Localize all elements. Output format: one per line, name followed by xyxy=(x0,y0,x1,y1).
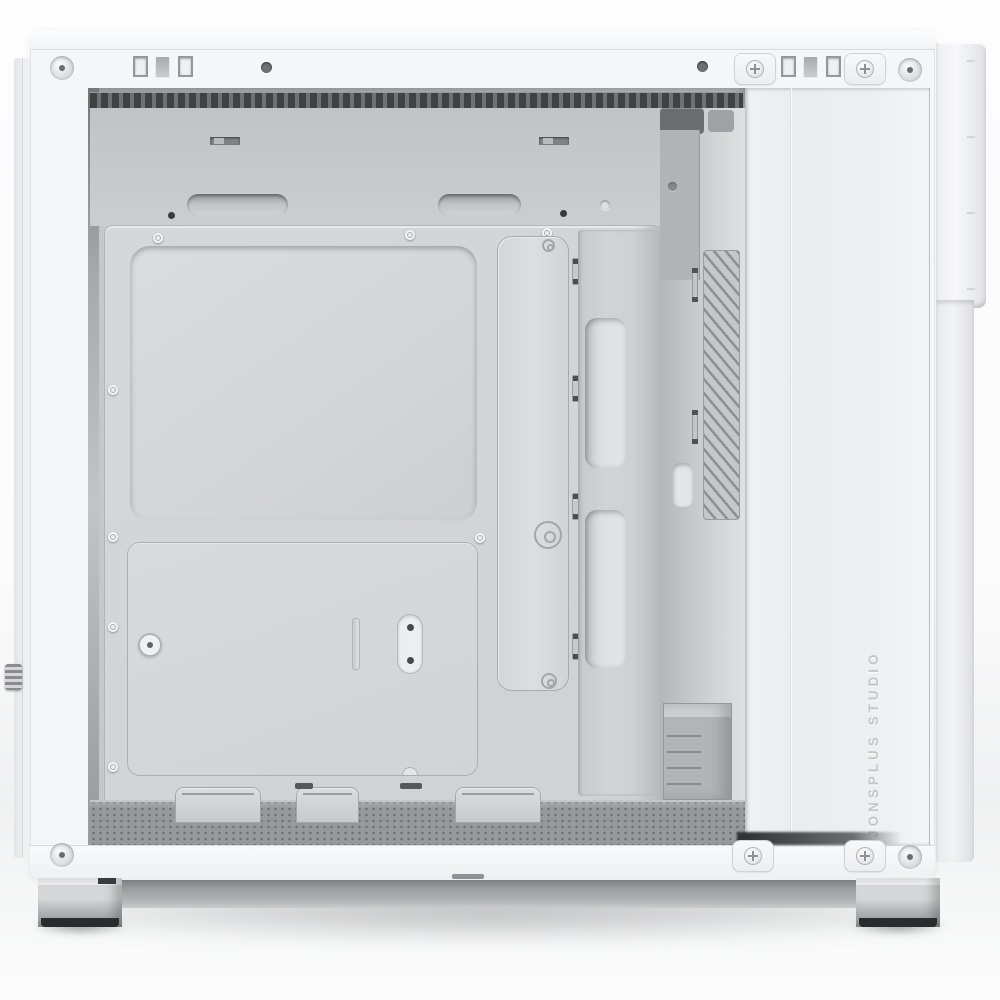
cable-passthrough-cutout xyxy=(585,318,626,468)
motherboard-standoff xyxy=(108,532,118,542)
top-frame-hole xyxy=(261,62,272,73)
wall-mount-slot xyxy=(692,268,698,302)
latch-tab xyxy=(804,57,817,76)
cable-tie-anchor xyxy=(572,493,579,520)
case-base-band xyxy=(50,879,918,908)
cable-passthrough-cutout xyxy=(585,510,626,668)
motherboard-standoff xyxy=(475,533,485,543)
left-case-foot xyxy=(38,878,122,927)
interior-cavity xyxy=(88,88,745,845)
louvered-vent-panel xyxy=(703,250,740,520)
top-bracket-gray xyxy=(708,110,734,132)
strip-screw-bottom xyxy=(541,673,557,689)
front-psu-column: JONSPLUS STUDIO xyxy=(745,88,930,845)
thumbscrew-tab xyxy=(733,841,773,871)
latch-cutout-group xyxy=(781,56,841,78)
latch-tab xyxy=(156,57,169,76)
foot-notch xyxy=(98,878,116,884)
tray-bottom-tab xyxy=(176,788,260,822)
thumbscrew-tab xyxy=(845,841,885,871)
panel-clip-slot xyxy=(210,137,240,145)
product-photo-pc-case: JONSPLUS STUDIO xyxy=(0,0,1000,1000)
wall-screw xyxy=(668,182,677,191)
bracket-screw xyxy=(407,624,414,631)
psu-drive-cover-panel xyxy=(128,543,477,775)
thumbscrew-tab xyxy=(845,54,885,84)
panel-pull-tab xyxy=(402,767,418,775)
brand-embossed-text: JONSPLUS STUDIO xyxy=(866,626,890,838)
handle-cutouts xyxy=(187,194,609,216)
wall-cutout xyxy=(672,463,693,507)
flange-clip-slot xyxy=(400,783,422,789)
edge-seam-ticks xyxy=(967,60,975,292)
black-screw xyxy=(168,212,175,219)
vertical-slot xyxy=(352,618,360,670)
interior-upper-wall xyxy=(90,108,745,226)
tray-edge-shade xyxy=(634,226,660,800)
cpu-cooler-cutout xyxy=(130,246,477,522)
latch-hole xyxy=(133,56,148,77)
column-seam xyxy=(790,88,791,845)
cable-tie-anchor xyxy=(572,633,579,660)
latch-hole xyxy=(781,56,796,77)
right-case-foot xyxy=(856,878,940,927)
black-screw xyxy=(560,210,567,217)
thumbscrew-tab xyxy=(735,54,775,84)
bracket-screw xyxy=(407,657,414,664)
top-frame-hole xyxy=(697,61,708,72)
motherboard-standoff xyxy=(108,762,118,772)
latch-hole xyxy=(178,56,193,77)
phillips-screw xyxy=(856,60,874,78)
bottom-rail-notch xyxy=(452,874,484,879)
front-panel-top-edge xyxy=(936,42,986,308)
panel-clip-slot xyxy=(539,137,569,145)
phillips-screw xyxy=(856,847,874,865)
top-frame-lip xyxy=(30,30,935,50)
motherboard-standoff xyxy=(405,230,415,240)
foot-rubber-pad xyxy=(41,918,119,927)
handle-cutout xyxy=(438,194,521,216)
drive-cage xyxy=(663,703,732,800)
cable-tie-anchor xyxy=(572,258,579,285)
phillips-screw xyxy=(746,60,764,78)
mounting-hole xyxy=(600,200,610,210)
motherboard-tray xyxy=(105,226,660,800)
screw-grommet xyxy=(138,633,162,657)
phillips-screw xyxy=(744,847,762,865)
corner-screw-top-left xyxy=(50,56,74,80)
motherboard-standoff xyxy=(153,233,163,243)
corner-screw-bottom-left xyxy=(50,843,74,867)
wall-mount-slot xyxy=(692,410,698,444)
front-interior-wall xyxy=(660,108,745,800)
rear-panel-seam xyxy=(22,58,23,858)
top-vent-strip xyxy=(90,92,743,108)
flange-clip-slot xyxy=(295,783,313,789)
foot-rubber-pad xyxy=(859,918,937,927)
tray-bottom-tab xyxy=(297,788,358,822)
motherboard-standoff xyxy=(108,385,118,395)
handle-cutout xyxy=(187,194,288,216)
wall-subpanel xyxy=(660,130,700,280)
cable-cover-strip xyxy=(498,237,568,690)
latch-cutout-group xyxy=(133,56,193,78)
latch-hole xyxy=(826,56,841,77)
tray-bottom-tab xyxy=(456,788,540,822)
motherboard-standoff xyxy=(108,622,118,632)
side-panel-thumbscrew xyxy=(5,664,22,690)
front-panel-lower-edge xyxy=(936,300,974,862)
strip-screw-top xyxy=(542,239,555,252)
corner-screw-top-right xyxy=(898,58,922,82)
tray-bottom-tabs xyxy=(176,788,636,822)
corner-screw-bottom-right xyxy=(898,845,922,869)
oval-screw-bracket xyxy=(398,615,422,673)
strip-thumbscrew xyxy=(534,521,562,549)
cable-tie-anchor xyxy=(572,375,579,402)
